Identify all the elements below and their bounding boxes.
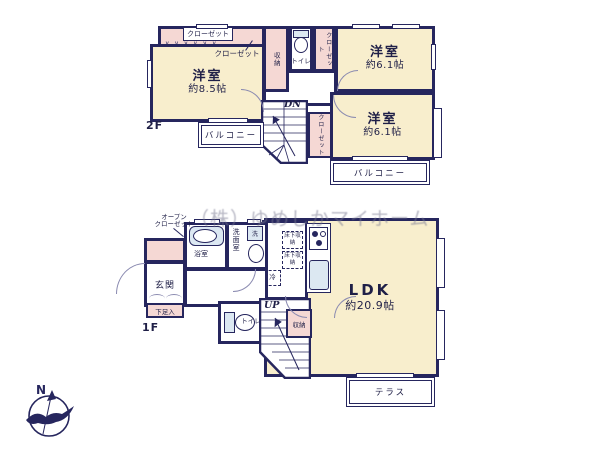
bathtub-inner — [193, 229, 217, 243]
window-marker — [431, 44, 436, 70]
closet-label-box: クローゼット — [183, 27, 233, 41]
bay-window-2f — [433, 108, 442, 158]
floorplan-canvas: クローゼット ∨∨∨∨∨∨ 洋室 約8.5帖 クローゼット 収納 トイレ クロー… — [0, 0, 600, 449]
kitchen-sink-icon — [309, 260, 329, 290]
entrance-door-arc — [116, 263, 145, 294]
toilet-bowl-icon — [294, 37, 308, 53]
storage-label: 収納 — [272, 52, 280, 67]
window-marker — [356, 373, 414, 378]
shoe-box-label: 下足入 — [155, 306, 175, 316]
floor-label-1f: 1F — [142, 321, 159, 334]
terrace-label: テラス — [375, 386, 406, 398]
washroom-label: 洗面室 — [231, 228, 240, 252]
bath-label: 浴室 — [189, 250, 213, 258]
wash-basin-icon — [248, 244, 264, 263]
room-size: 約6.1帖 — [366, 60, 404, 72]
burner — [312, 231, 318, 237]
shoe-box: 下足入 — [146, 303, 184, 318]
room-size: 約8.5帖 — [188, 84, 226, 96]
underfloor-storage: 床下収納 — [282, 251, 303, 269]
entrance-label: 玄関 — [155, 278, 175, 291]
room-size: 約6.1帖 — [363, 127, 401, 139]
compass-north-icon: N — [16, 378, 80, 444]
bay-window-1f — [436, 310, 445, 360]
underfloor-storage: 床下収納 — [282, 231, 303, 249]
open-closet — [144, 238, 186, 263]
balcony-2f-right: バルコニー — [330, 160, 430, 185]
window-marker — [352, 156, 408, 161]
closet-leader-label: クローゼット — [214, 50, 260, 59]
room-name: 洋室 — [370, 46, 400, 61]
door-arc — [166, 294, 182, 303]
compass-north-letter: N — [36, 383, 46, 397]
stairs-dn-label: DN — [284, 99, 301, 110]
window-marker — [208, 118, 248, 123]
closet-label: クローゼット — [316, 114, 324, 156]
closet-b-2f: クローゼット — [308, 112, 332, 158]
balcony-2f-left: バルコニー — [198, 122, 264, 148]
company-watermark: （株）ゆめしかマイホーム — [190, 204, 429, 231]
terrace: テラス — [346, 377, 435, 407]
compass: N — [16, 378, 80, 444]
bay-window-1f — [436, 238, 445, 288]
window-marker — [392, 24, 420, 29]
toilet-label: トイレ — [289, 58, 313, 65]
storage-2f: 収納 — [263, 26, 289, 92]
room-name: 洋室 — [192, 70, 222, 85]
floor-label-2f: 2F — [146, 119, 163, 132]
balcony-label: バルコニー — [354, 167, 406, 179]
closet-label: クローゼット — [316, 29, 332, 69]
window-marker — [147, 60, 152, 88]
stairs-up-label: UP — [264, 300, 279, 311]
toilet-tank-icon — [224, 312, 235, 333]
open-closet-leader-line — [173, 228, 184, 237]
room-name: 洋室 — [367, 113, 397, 128]
storage-label: 収納 — [293, 319, 306, 329]
window-marker — [352, 24, 380, 29]
burner — [320, 231, 326, 237]
burner — [316, 240, 322, 246]
closet-a-2f: クローゼット — [313, 26, 335, 72]
door-arc — [149, 294, 165, 303]
window-marker — [196, 24, 228, 29]
balcony-label: バルコニー — [205, 129, 257, 141]
